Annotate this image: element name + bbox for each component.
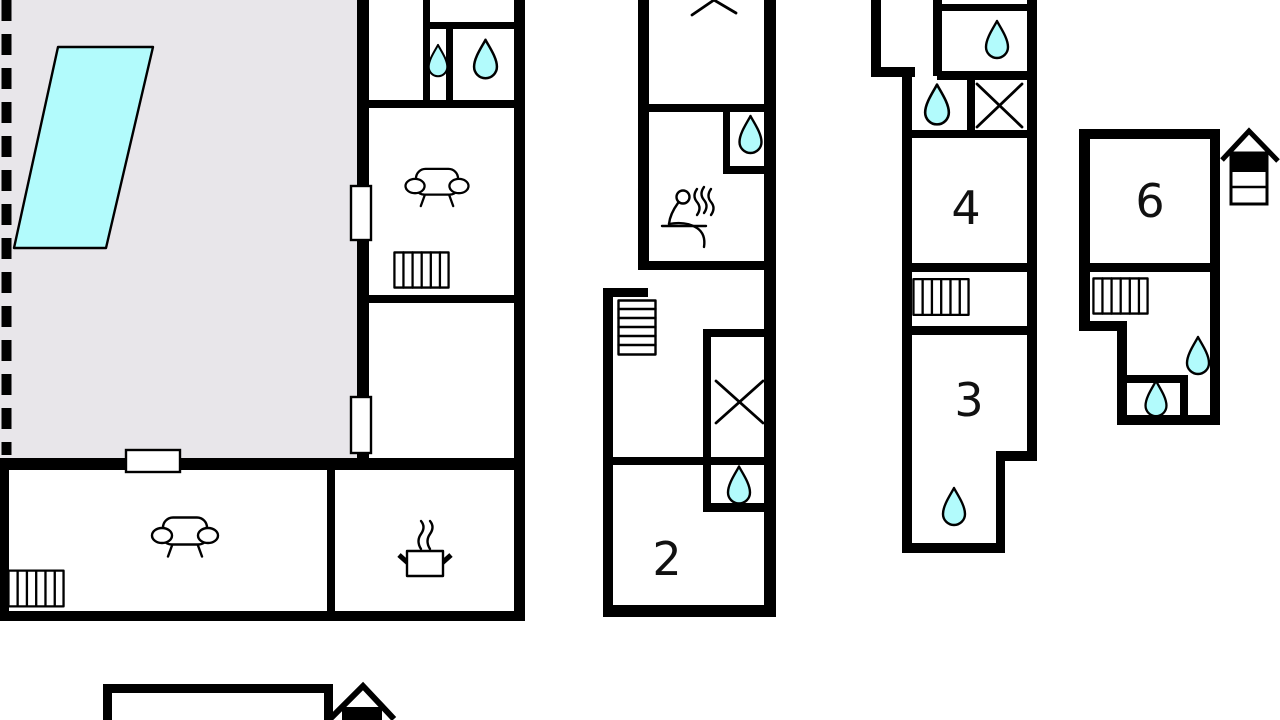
water-drop-icon: [1146, 381, 1167, 416]
radiator-icon: [1093, 278, 1147, 313]
water-drop-icon: [474, 40, 497, 78]
wardrobe-x-icon: [692, 0, 736, 15]
stairs-icon: [619, 301, 656, 355]
water-drop-icon: [925, 85, 949, 125]
cooking-pot-icon: [399, 521, 451, 576]
wardrobe-x-icon: [716, 381, 763, 423]
water-drop-icon: [728, 467, 750, 504]
sauna-icon: [662, 187, 714, 247]
water-drop-icon: [740, 116, 762, 153]
terrace-door-icon: [126, 450, 180, 472]
floor-plan: 2 3 4 6: [0, 0, 1280, 720]
water-drop-icon: [1187, 337, 1209, 374]
sofa-icon: [152, 518, 218, 557]
stove-icon: [330, 686, 394, 720]
room-4-label: 4: [951, 181, 980, 235]
door-icon: [351, 397, 371, 453]
radiator-icon: [394, 252, 448, 287]
room-6-label: 6: [1135, 174, 1164, 228]
water-drop-icon: [986, 21, 1008, 58]
door-icon: [351, 186, 371, 240]
bathroom-icons: [429, 21, 1209, 525]
water-drop-icon: [943, 488, 965, 525]
wardrobe-x-icon: [977, 84, 1022, 127]
stove-icon: [1222, 131, 1278, 204]
sofa-icon: [406, 169, 469, 206]
radiator-icon: [913, 279, 968, 315]
radiator-icon: [8, 571, 63, 607]
room-3-label: 3: [954, 373, 983, 427]
water-drop-icon: [429, 45, 448, 76]
room-2-label: 2: [652, 532, 681, 586]
terrace-area: [0, 0, 357, 458]
